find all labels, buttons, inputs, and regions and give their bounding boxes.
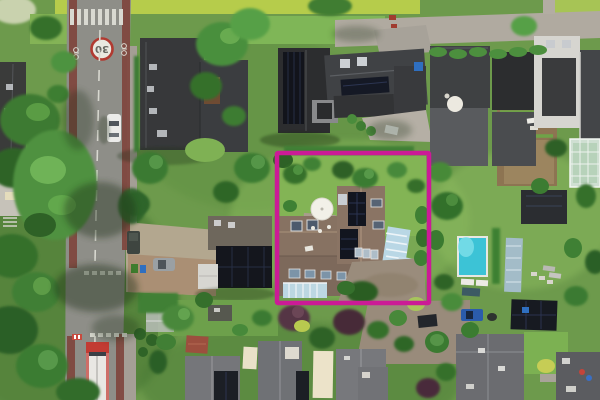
tree-maroon	[333, 309, 365, 335]
skylight	[147, 86, 154, 92]
blue-bin	[140, 265, 146, 273]
tree-canopy	[309, 327, 335, 349]
rooftop-unit	[466, 384, 474, 389]
chimney-block	[317, 103, 332, 119]
blue-toy	[586, 375, 592, 381]
rooftop-unit	[562, 358, 570, 364]
lawn-patch	[185, 138, 225, 162]
white-house-roof	[542, 58, 576, 116]
tree-canopy	[132, 152, 168, 184]
house-roof	[492, 52, 536, 110]
conifer	[138, 347, 148, 357]
zebra-stripe	[112, 9, 116, 25]
bike-lane-right	[116, 334, 124, 400]
roof-hatch	[338, 194, 347, 205]
tree-canopy	[428, 162, 452, 182]
solar-array	[296, 371, 309, 400]
roof-window	[373, 221, 384, 229]
tree-shade	[24, 213, 56, 237]
shade-sail	[313, 351, 334, 398]
house-roof	[580, 50, 600, 146]
tree-maroon	[416, 378, 440, 398]
tree-canopy	[441, 293, 463, 311]
playset	[537, 359, 555, 373]
patio-table	[445, 94, 450, 99]
hedge-strip	[134, 56, 139, 152]
tree-canopy	[195, 292, 213, 308]
street-hedge	[469, 47, 487, 57]
tree-canopy	[222, 106, 246, 126]
facade-window	[289, 269, 300, 278]
garden-bush	[337, 281, 355, 295]
tree-canopy	[431, 192, 463, 220]
tree-canopy	[576, 184, 596, 208]
house-roof-lower	[430, 108, 488, 166]
zebra-stripe	[77, 9, 81, 25]
car-shadow	[98, 116, 110, 144]
garden-shed	[208, 305, 232, 321]
dormer	[357, 57, 367, 66]
skylight	[562, 40, 571, 48]
skylight	[149, 108, 157, 114]
building-shadow	[260, 132, 340, 148]
rooftop-unit	[498, 366, 505, 371]
tree-highlight	[251, 155, 265, 169]
rooftop-unit	[344, 356, 350, 360]
street-hedge	[449, 49, 467, 59]
pool-highlight	[458, 237, 474, 257]
rooftop-unit	[285, 347, 299, 359]
parked-dark-car	[417, 314, 437, 328]
garden-room-roof	[521, 190, 567, 224]
bus-red-stripe	[106, 353, 109, 400]
bus-cab	[86, 342, 109, 353]
tree-highlight	[26, 103, 50, 121]
planter-round	[487, 313, 497, 321]
garden-bush	[232, 324, 248, 336]
skylight	[228, 222, 235, 228]
tree-canopy	[387, 162, 407, 178]
garden-chair	[311, 226, 315, 230]
tree-highlight	[293, 165, 303, 175]
footpath-top	[543, 0, 555, 14]
tree-shadow-on-road	[64, 182, 136, 238]
tree-canopy	[30, 16, 62, 40]
tree-shadow	[368, 120, 412, 140]
zebra-stripe	[119, 9, 123, 25]
giveway-dash	[90, 333, 95, 337]
tree-canopy	[149, 350, 167, 374]
tree-canopy	[252, 310, 272, 326]
tree-shadow-on-road	[62, 90, 94, 150]
greenhouse-glass	[573, 143, 597, 183]
zebra-stripe	[70, 9, 74, 25]
barrier-sign-stripe	[74, 335, 76, 339]
rooftop-unit	[362, 372, 370, 378]
tree-highlight	[446, 194, 458, 206]
stepping-stone	[547, 280, 553, 284]
tree-highlight	[178, 308, 190, 320]
tree-maroon-highlight	[292, 306, 304, 318]
blue-bin	[414, 62, 423, 71]
aerial-photo-canvas: 30	[0, 0, 600, 400]
car-rear-window	[109, 133, 119, 137]
pool-cover	[462, 287, 481, 296]
red-planter	[391, 24, 397, 28]
tree-highlight	[33, 277, 51, 295]
zebra-stripe	[84, 9, 88, 25]
tree-canopy	[394, 336, 414, 352]
tree-canopy	[407, 179, 425, 193]
barrier-sign	[72, 334, 82, 340]
street-hedge	[509, 47, 527, 57]
round-hedge-center	[430, 334, 444, 346]
dormer-window	[355, 248, 362, 257]
garden-bush	[283, 200, 297, 212]
dormer-window	[363, 249, 370, 258]
tree-canopy	[162, 305, 194, 331]
tree-canopy	[303, 157, 321, 171]
garden-chair	[318, 229, 322, 233]
tree-canopy	[230, 8, 270, 40]
tree-canopy	[434, 274, 454, 290]
shade-sail	[242, 347, 257, 370]
tree-shadow-on-road	[92, 315, 140, 341]
car-glass	[158, 260, 166, 269]
tree-highlight	[364, 169, 374, 179]
skylight	[149, 64, 157, 70]
yellow-bush	[294, 320, 310, 332]
tree-highlight	[30, 156, 66, 184]
tree-canopy	[47, 85, 69, 103]
dormer	[340, 59, 350, 68]
house-roof	[456, 334, 524, 400]
rooftop-unit	[566, 386, 576, 392]
tree-canopy	[332, 161, 354, 179]
speed-limit-30-marking: 30	[95, 43, 109, 54]
street-hedge	[529, 45, 547, 55]
zebra-stripe	[91, 9, 95, 25]
tree-shadow-on-road	[54, 264, 138, 312]
conifer	[146, 334, 158, 346]
bus-windshield	[89, 352, 106, 356]
tree-canopy	[234, 153, 270, 183]
zebra-stripe	[105, 9, 109, 25]
stepping-stone	[531, 272, 537, 276]
garden-chair	[327, 225, 331, 229]
rooftop-unit	[478, 348, 485, 353]
red-planter	[389, 15, 396, 20]
tree-canopy	[367, 321, 389, 339]
zebra-stripe	[98, 9, 102, 25]
skylight	[546, 40, 555, 48]
lounger	[461, 279, 474, 286]
shed-skylight	[214, 308, 220, 312]
tree-canopy	[545, 139, 567, 157]
hedge-strip	[492, 228, 500, 284]
shrub	[356, 121, 366, 131]
tree-shadow	[332, 26, 380, 42]
hedge-ball	[564, 238, 582, 258]
villa-lower-roof	[334, 94, 395, 118]
green-bin	[131, 264, 138, 273]
skylight	[157, 130, 167, 137]
facade-window	[337, 272, 346, 280]
tree-canopy	[213, 181, 239, 203]
stepping-stone	[539, 276, 545, 280]
van-roof	[129, 233, 138, 241]
street-hedge	[429, 47, 447, 57]
tree-canopy	[531, 178, 549, 194]
garden-bush	[156, 334, 176, 350]
tree-canopy	[190, 72, 222, 100]
villa-east-block	[394, 66, 426, 118]
shrub	[347, 114, 357, 124]
tree-highlight	[149, 155, 163, 169]
tree-canopy	[511, 16, 537, 36]
dormer-window	[371, 250, 378, 259]
street-hedge	[489, 49, 507, 59]
parasol-pole	[321, 208, 324, 211]
facade-window	[321, 271, 331, 279]
terrace-roof	[358, 367, 388, 400]
car-windshield	[466, 311, 473, 319]
tree-canopy	[389, 310, 407, 326]
skylight	[6, 84, 13, 90]
facade-window	[305, 270, 315, 278]
tree-canopy	[564, 286, 588, 306]
tree-highlight	[38, 350, 58, 370]
barrier-sign-stripe	[78, 335, 80, 339]
red-toy	[579, 369, 585, 375]
aerial-photo: 30	[0, 0, 600, 400]
tree-canopy	[461, 322, 479, 338]
roof-window	[291, 221, 302, 231]
roof-window	[371, 199, 382, 207]
tree-canopy	[51, 51, 77, 73]
hedge-ball	[414, 250, 428, 266]
lounger	[476, 280, 488, 287]
car-windshield	[109, 121, 119, 126]
skylight	[214, 220, 221, 226]
tree-canopy	[436, 363, 456, 381]
patio-parasol	[447, 96, 463, 112]
blue-bin	[522, 307, 529, 313]
